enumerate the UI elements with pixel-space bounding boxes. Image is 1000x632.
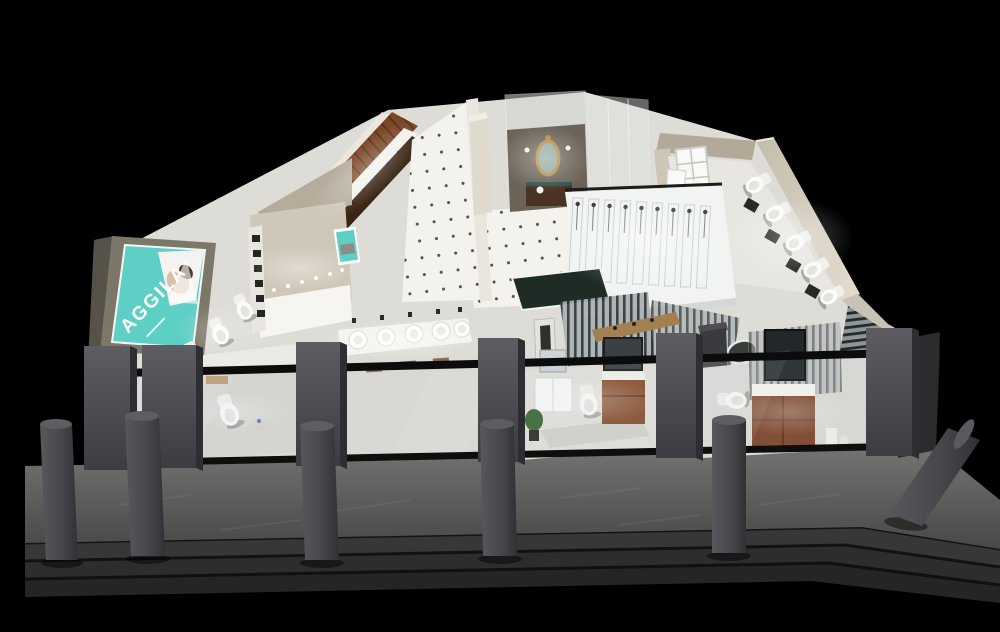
pier xyxy=(866,328,919,459)
pier xyxy=(656,333,703,461)
pillar xyxy=(707,415,751,561)
showroom-scene: AGGILA xyxy=(0,0,1000,632)
glass-shower-cabins xyxy=(588,95,650,196)
showroom-render: AGGILA xyxy=(0,0,1000,632)
